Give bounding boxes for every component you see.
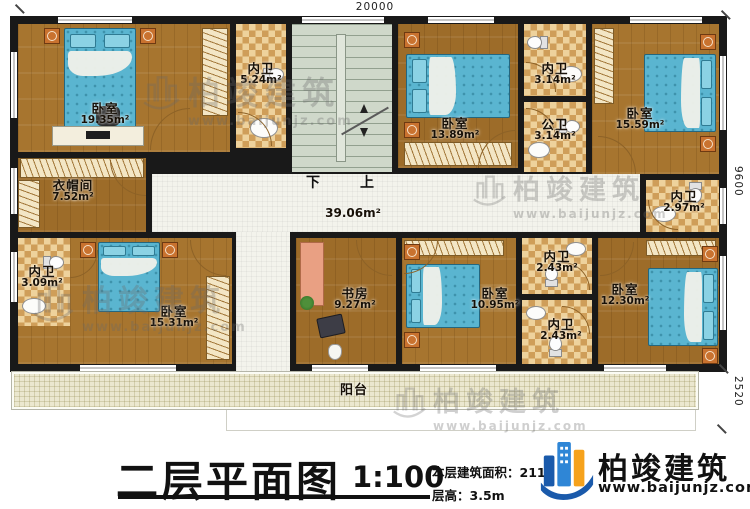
window bbox=[720, 188, 726, 224]
label-cloakroom: 衣帽间7.52m² bbox=[38, 176, 108, 206]
stair-arrow-up bbox=[360, 104, 368, 113]
label-bath-314: 内卫3.14m² bbox=[528, 60, 582, 88]
label-balcony: 阳台 bbox=[322, 382, 386, 400]
wardrobe bbox=[18, 180, 40, 228]
label-bedroom-topleft: 卧室19.35m² bbox=[65, 100, 145, 128]
nightstand bbox=[162, 242, 178, 258]
dimension-balcony: 2520 bbox=[732, 376, 744, 407]
label-bedroom-botmid: 卧室10.95m² bbox=[458, 284, 532, 314]
label-bath-243a: 内卫2.43m² bbox=[528, 248, 586, 276]
label-bedroom-topmid: 卧室13.89m² bbox=[420, 114, 490, 144]
nightstand bbox=[702, 348, 718, 364]
window bbox=[720, 256, 726, 330]
window bbox=[428, 17, 494, 23]
label-bath-297: 内卫2.97m² bbox=[652, 188, 716, 216]
toilet bbox=[527, 35, 548, 50]
nightstand bbox=[404, 332, 420, 348]
stair-down-label: 下 bbox=[306, 172, 320, 192]
sink bbox=[22, 298, 46, 314]
label-bath-243b: 内卫2.43m² bbox=[532, 316, 590, 344]
label-bedroom-botright: 卧室12.30m² bbox=[588, 280, 662, 310]
label-bedroom-topright: 卧室15.59m² bbox=[604, 104, 676, 134]
wardrobe bbox=[594, 28, 614, 104]
dimension-tick bbox=[717, 424, 727, 434]
label-study: 书房9.27m² bbox=[322, 284, 388, 314]
nightstand bbox=[44, 28, 60, 44]
stair-arrow-down bbox=[360, 128, 368, 137]
floor-area-line: 本层建筑面积：211. bbox=[432, 462, 550, 481]
brand-website: www.baijunjz.com bbox=[598, 480, 750, 496]
nightstand bbox=[700, 34, 716, 50]
title-underline bbox=[118, 495, 430, 499]
label-bath-309: 内卫3.09m² bbox=[14, 262, 70, 292]
balcony-railing-outline bbox=[226, 409, 696, 431]
floor-plan: 下 上 卧室19.35m² 内卫5.24m² 卧室13.89m² 内卫3.14m… bbox=[0, 0, 750, 509]
bed bbox=[406, 54, 510, 118]
corridor bbox=[152, 174, 640, 232]
wardrobe bbox=[202, 28, 228, 116]
nightstand bbox=[702, 246, 718, 262]
window bbox=[420, 365, 496, 371]
dimension-top: 20000 bbox=[330, 1, 420, 13]
window bbox=[312, 365, 368, 371]
nightstand bbox=[404, 122, 420, 138]
nightstand bbox=[404, 32, 420, 48]
decor-item bbox=[328, 344, 342, 360]
corridor-to-balcony bbox=[236, 232, 290, 372]
keyboard bbox=[86, 131, 110, 139]
label-corridor-area: 39.06m² bbox=[308, 204, 398, 222]
window bbox=[630, 17, 702, 23]
plan-scale: 1:100 bbox=[352, 460, 444, 494]
label-bath-public: 公卫3.14m² bbox=[528, 116, 582, 144]
window bbox=[11, 52, 17, 118]
nightstand bbox=[700, 136, 716, 152]
sink bbox=[528, 142, 550, 158]
stair-rail bbox=[336, 34, 346, 162]
dimension-right: 9600 bbox=[732, 166, 744, 197]
window bbox=[80, 365, 176, 371]
label-bath-524: 内卫5.24m² bbox=[236, 60, 286, 88]
plan-title: 二层平面图 bbox=[116, 448, 341, 509]
dimension-tick bbox=[15, 4, 25, 14]
floor-height-line: 层高：3.5m bbox=[432, 485, 505, 504]
stair-up-label: 上 bbox=[360, 172, 374, 192]
plant bbox=[300, 296, 314, 310]
balcony-door bbox=[604, 365, 666, 371]
window bbox=[720, 56, 726, 130]
window bbox=[302, 17, 384, 23]
nightstand bbox=[140, 28, 156, 44]
window bbox=[58, 17, 132, 23]
label-bedroom-botleft: 卧室15.31m² bbox=[136, 302, 212, 332]
window bbox=[11, 168, 17, 214]
brand-logo-icon bbox=[538, 436, 596, 504]
